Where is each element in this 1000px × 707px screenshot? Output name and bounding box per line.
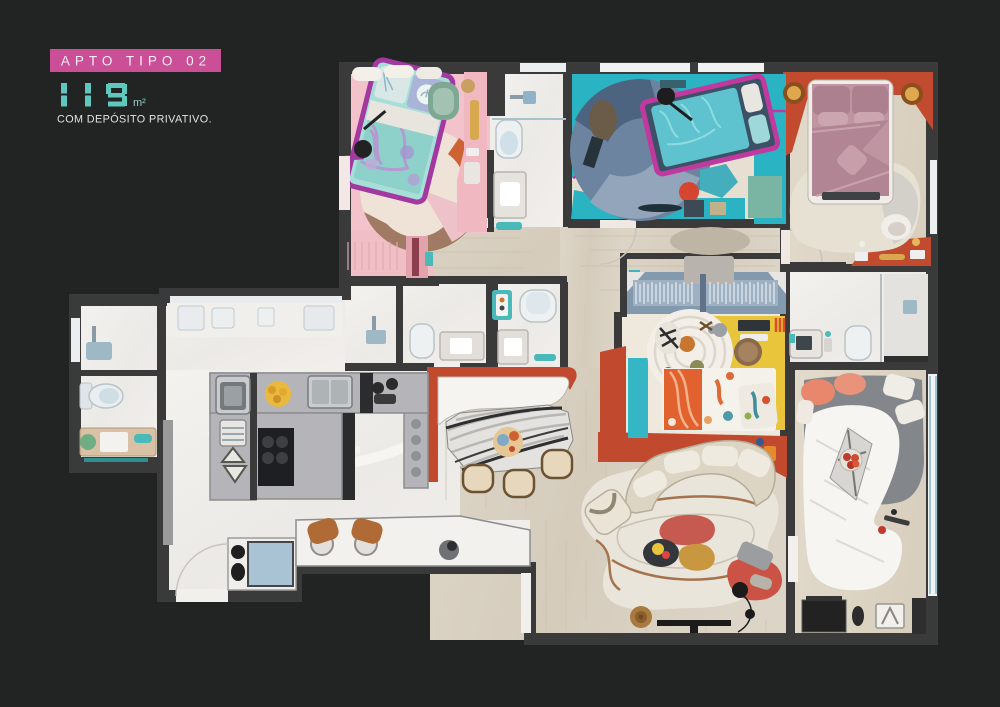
svg-text:m²: m² [133,97,146,109]
svg-text:APTO TIPO 02: APTO TIPO 02 [61,54,211,69]
svg-text:COM DEPÓSITO PRIVATIVO.: COM DEPÓSITO PRIVATIVO. [57,113,212,126]
